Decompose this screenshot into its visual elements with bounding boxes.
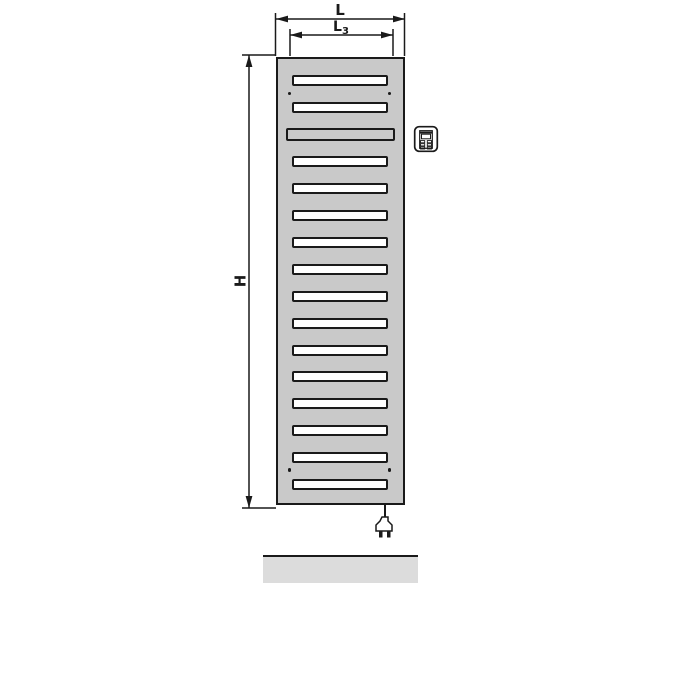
controller-icon [415, 127, 438, 152]
radiator-slot [292, 102, 388, 113]
mounting-width-label-subscript: 3 [342, 26, 349, 37]
arrow-up-icon [246, 55, 253, 67]
mounting-hole [288, 468, 292, 472]
radiator-slot [292, 75, 388, 86]
radiator-slot [292, 183, 388, 194]
radiator-slot [292, 210, 388, 221]
arrow-right-icon [381, 32, 393, 39]
mounting-hole [288, 92, 292, 96]
mounting-width-label: L3 [333, 20, 349, 34]
radiator-slot [292, 291, 388, 302]
arrow-left-icon [290, 32, 302, 39]
radiator-slot [292, 371, 388, 382]
technical-drawing: L L3 H [0, 0, 700, 700]
controller-display [422, 134, 431, 139]
radiator-slot [292, 345, 388, 356]
heating-element-slot [286, 128, 395, 141]
arrow-down-icon [246, 496, 253, 508]
height-label: H [234, 275, 249, 288]
controller-buttons [421, 141, 432, 149]
radiator-panel [276, 57, 405, 505]
mounting-hole [388, 92, 392, 96]
mounting-hole [388, 468, 392, 472]
width-label: L [335, 3, 345, 18]
radiator-slot [292, 425, 388, 436]
radiator-slot [292, 452, 388, 463]
mounting-width-label-base: L [333, 19, 342, 35]
arrow-left-icon [276, 16, 288, 23]
radiator-slot [292, 398, 388, 409]
radiator-slot [292, 318, 388, 329]
radiator-slot [292, 479, 388, 490]
arrow-right-icon [393, 16, 405, 23]
floor-bar [263, 555, 418, 583]
power-plug-icon [376, 504, 392, 538]
radiator-slot [292, 264, 388, 275]
radiator-slot [292, 237, 388, 248]
radiator-slot [292, 156, 388, 167]
